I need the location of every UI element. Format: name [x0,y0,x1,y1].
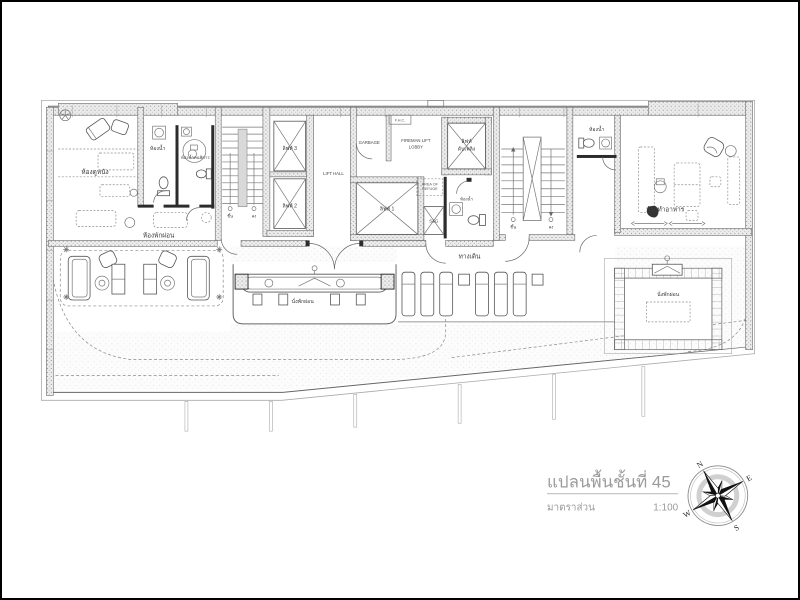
kitchen-room: ห้องทำอาหาร [631,136,739,226]
garbage-label: GARBAGE [359,140,380,145]
stair-1: ขึ้น ลง [221,127,263,254]
bathroom-center-label: ห้องน้ำ [460,196,473,202]
bathroom-right: ห้องน้ำ [579,125,616,252]
garbage-room: GARBAGE [356,140,380,159]
lift-1: ลิฟท์ 1 [350,177,424,241]
title-block: แปลนพื้นชั้นที่ 45 มาตราส่วน 1:100 [547,470,679,514]
fire-lift-label1: ลิฟท์ [461,138,472,145]
lounge-room: ห้องพักผ่อน [76,211,211,240]
stair2-up-label: ขึ้น [510,223,516,229]
lift3-label: ลิฟท์ 3 [282,145,297,152]
compass-n-label: N [695,459,705,470]
lounge-label: ห้องพักผ่อน [143,231,175,239]
fireman-lobby-label1: FIREMAN LIFT [401,138,431,143]
floor-plan-svg: ขึ้น ลง ลิฟท์ 3 ลิฟท์ 2 LIFT HALL GARBAG… [2,2,798,598]
scale-value: 1:100 [653,503,678,514]
fire-lift: ลิฟท์ ดับเพลิง [442,117,492,175]
bathroom-right-label: ห้องน้ำ [589,125,605,133]
drawing-sheet: ขึ้น ลง ลิฟท์ 3 ลิฟท์ 2 LIFT HALL GARBAG… [0,0,800,600]
sunken-seating-right: นั่งพักผ่อน [605,256,732,354]
refuge-label1: AREA OF [422,182,439,186]
fhc-box: F.H.C. [389,115,411,124]
stair2-down-label: ลง [549,224,554,229]
sg-shaft: S&G [424,207,444,235]
kitchen-label: ห้องทำอาหาร [646,206,684,214]
bench-left-label: นั่งพักผ่อน [292,298,315,305]
movie-room-label: ห้องดูหนัง [81,168,108,176]
fireman-lift-lobby: FIREMAN LIFT LOBBY [401,138,431,149]
fireman-lobby-label2: LOBBY [409,145,423,150]
stair1-down-label: ลง [252,214,257,219]
compass-s-label: S [732,523,740,533]
lift1-label: ลิฟท์ 1 [380,206,395,213]
movie-room: ห้องดูหนัง [58,110,137,197]
fhc-label: F.H.C. [395,119,405,123]
scale-label: มาตราส่วน [547,503,595,514]
compass-e-label: E [745,473,754,483]
corridor-label: ทางเดิน [459,252,481,260]
stair1-up-label: ขึ้น [227,213,233,219]
lift-hall-label: LIFT HALL [323,171,344,176]
lift2-label: ลิฟท์ 2 [282,203,297,210]
bathroom-left: ห้องน้ำ [150,126,170,202]
compass-rose: N E S W [664,442,772,552]
stair-2: ขึ้น ลง [501,137,565,261]
fire-lift-label2: ดับเพลิง [458,146,476,153]
sunken-seating-label: นั่งพักผ่อน [657,291,680,298]
refuge-label2: REFUGE [422,187,438,191]
bathroom-left-label: ห้องน้ำ [150,144,166,152]
sheet-title: แปลนพื้นชั้นที่ 45 [547,470,671,492]
sg-label: S&G [429,219,438,224]
accessible-bathroom-label: ห้องน้ำคนพิการ [181,154,210,160]
